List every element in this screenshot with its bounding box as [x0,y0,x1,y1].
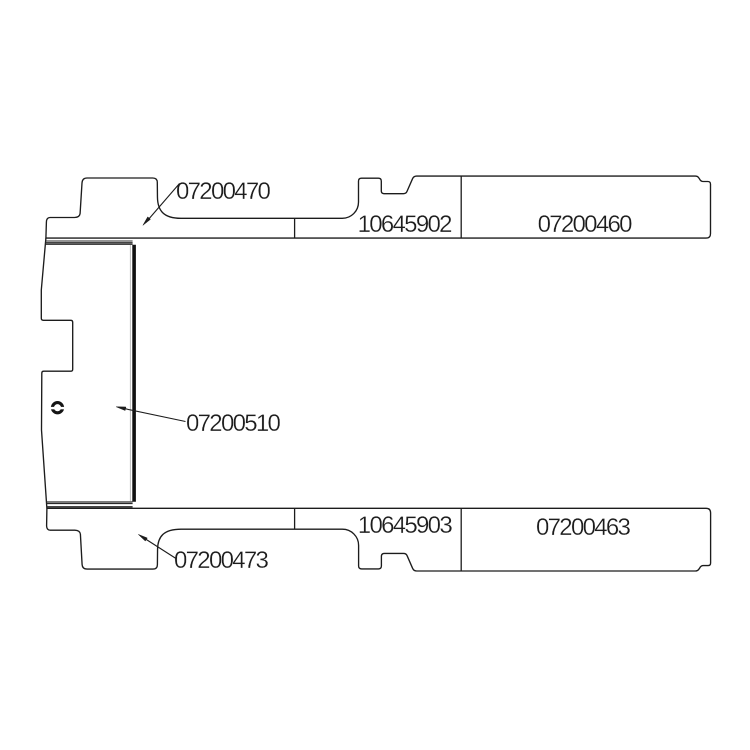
svg-text:10645902: 10645902 [358,211,453,238]
svg-text:07200473: 07200473 [174,547,269,574]
svg-text:07200510: 07200510 [186,410,281,437]
svg-text:07200470: 07200470 [176,178,271,205]
svg-text:07200460: 07200460 [538,211,633,238]
svg-text:10645903: 10645903 [358,512,453,539]
svg-text:07200463: 07200463 [536,514,631,541]
